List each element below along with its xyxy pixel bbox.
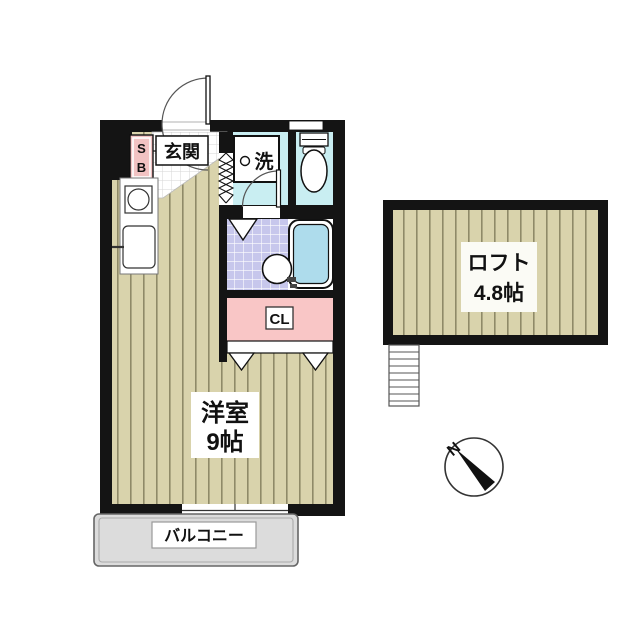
main-room-label-box: 洋室 9帖 [191, 392, 259, 458]
washer-label: 洗 [254, 150, 273, 173]
shoe-box-recess-wall [100, 120, 132, 180]
toilet-window [289, 121, 323, 130]
entry-door-leaf [206, 76, 210, 124]
closet-label: CL [270, 311, 290, 328]
main-room-name: 洋室 [201, 399, 249, 427]
entrance-label-box: 玄関 [149, 136, 208, 165]
washer-circle-mark [241, 157, 250, 166]
kitchen-sink [123, 226, 155, 268]
bathroom-door-opening [243, 206, 280, 218]
main-unit: 玄関 S B 洗 [100, 76, 345, 516]
compass: N [444, 438, 503, 496]
bathtub [294, 225, 329, 284]
washer-toilet-wall [288, 132, 296, 208]
loft-ladder [389, 345, 419, 406]
accordion-door [219, 132, 233, 205]
basin-faucet [287, 277, 296, 282]
floor-plan-page: 玄関 S B 洗 [0, 0, 640, 640]
bathroom-door-leaf [277, 170, 281, 207]
washing-machine: 洗 [234, 136, 279, 182]
closet-top-wall [219, 290, 345, 298]
stove-burner [128, 189, 149, 210]
balcony: バルコニー [94, 514, 298, 566]
bathroom-top-wall [219, 205, 345, 219]
closet-door-track [227, 341, 333, 353]
floor-plan-drawing: 玄関 S B 洗 [0, 0, 640, 640]
balcony-label: バルコニー [164, 527, 244, 545]
shoe-box-label-s: S [137, 141, 146, 156]
bathroom [227, 219, 333, 290]
loft-name: ロフト [468, 252, 531, 275]
entrance-label: 玄関 [164, 141, 200, 162]
toilet-bowl [301, 150, 327, 192]
loft: ロフト 4.8帖 [383, 200, 608, 406]
shoe-box-label-b: B [137, 160, 146, 175]
main-room-size: 9帖 [206, 429, 243, 456]
loft-size: 4.8帖 [474, 282, 524, 305]
